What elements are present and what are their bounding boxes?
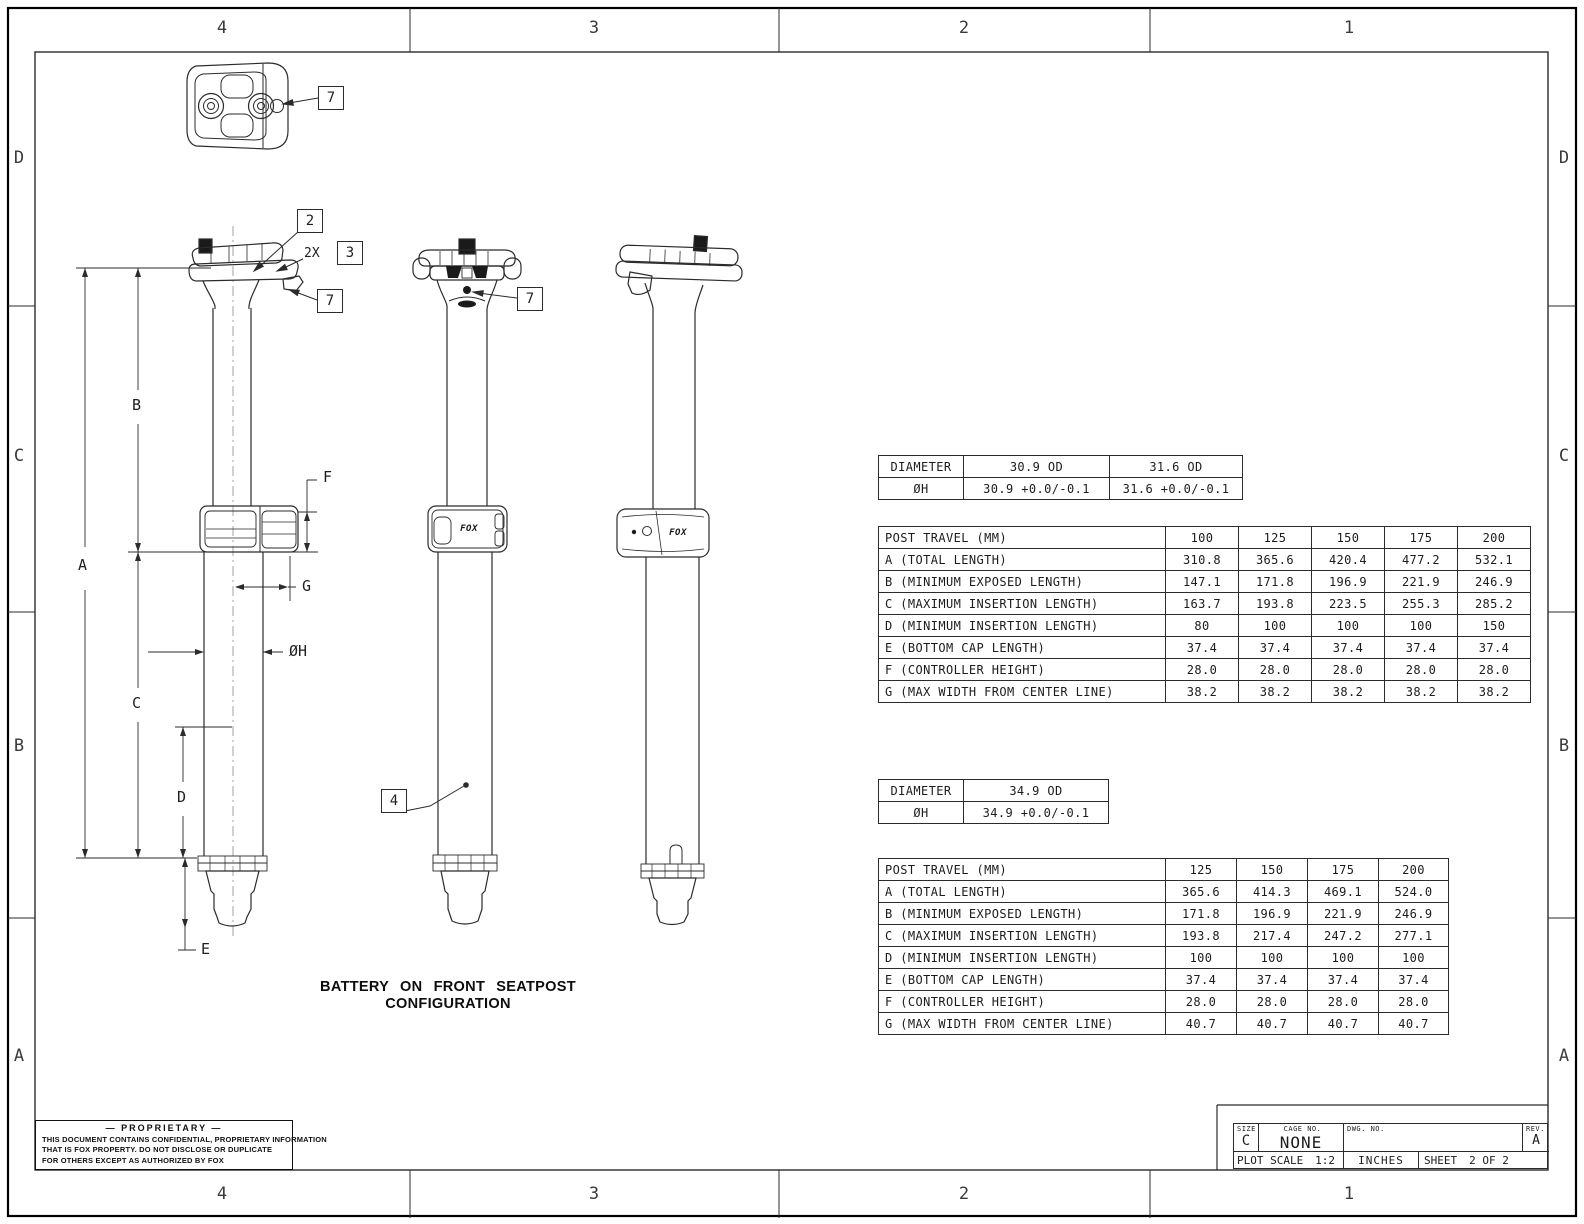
table-cell: 37.4 [1312,637,1385,659]
table-cell: E (BOTTOM CAP LENGTH) [879,637,1166,659]
fox-logo: FOX [454,524,484,534]
table-cell: DIAMETER [879,456,964,478]
table-cell: 100 [1385,615,1458,637]
zone-row-label: C [1551,446,1577,466]
zone-col-label: 1 [1336,18,1362,38]
table-cell: 100 [1239,615,1312,637]
table-cell: 34.9 +0.0/-0.1 [964,802,1109,824]
table-cell: 31.6 +0.0/-0.1 [1110,478,1243,500]
table-cell: 100 [1166,527,1239,549]
table-cell: 221.9 [1385,571,1458,593]
table-cell: 100 [1166,947,1237,969]
proprietary-line: THAT IS FOX PROPERTY. DO NOT DISCLOSE OR… [42,1145,292,1154]
table-cell: 28.0 [1308,991,1379,1013]
cad-table: POST TRAVEL (MM)100125150175200A (TOTAL … [878,526,1531,703]
table-row: DIAMETER30.9 OD31.6 OD [879,456,1243,478]
table-row: ØH30.9 +0.0/-0.131.6 +0.0/-0.1 [879,478,1243,500]
table-cell: D (MINIMUM INSERTION LENGTH) [879,947,1166,969]
table-cell: 40.7 [1166,1013,1237,1035]
dim-label-e: E [200,942,211,957]
callout-7-top-view: 7 [318,86,344,110]
table-cell: 310.8 [1166,549,1239,571]
table-cell: 285.2 [1458,593,1531,615]
table-cell: 365.6 [1239,549,1312,571]
travel-table-1: POST TRAVEL (MM)100125150175200A (TOTAL … [878,526,1531,703]
table-cell: 34.9 OD [964,780,1109,802]
fox-logo: FOX [663,528,693,538]
table-row: G (MAX WIDTH FROM CENTER LINE)40.740.740… [879,1013,1449,1035]
table-cell: 37.4 [1237,969,1308,991]
table-cell: 38.2 [1458,681,1531,703]
table-cell: 414.3 [1237,881,1308,903]
title-dwg-cell: DWG. NO. [1344,1124,1523,1151]
table-cell: 37.4 [1166,969,1237,991]
size-label: SIZE [1234,1124,1258,1133]
table-cell: 532.1 [1458,549,1531,571]
sheet-value: 2 OF 2 [1469,1154,1509,1167]
zone-col-label: 1 [1336,1184,1362,1204]
table-cell: 37.4 [1458,637,1531,659]
table-cell: A (TOTAL LENGTH) [879,549,1166,571]
cad-table: DIAMETER30.9 OD31.6 ODØH30.9 +0.0/-0.131… [878,455,1243,500]
table-row: D (MINIMUM INSERTION LENGTH)100100100100 [879,947,1449,969]
table-cell: 200 [1379,859,1449,881]
table-cell: 150 [1237,859,1308,881]
table-cell: 37.4 [1239,637,1312,659]
cad-table: DIAMETER34.9 ODØH34.9 +0.0/-0.1 [878,779,1109,824]
callout-7-front-view: 7 [517,287,543,311]
zone-row-label: D [6,148,32,168]
table-cell: 28.0 [1166,991,1237,1013]
units-cell: INCHES [1344,1151,1419,1168]
table-row: A (TOTAL LENGTH)310.8365.6420.4477.2532.… [879,549,1531,571]
table-row: POST TRAVEL (MM)100125150175200 [879,527,1531,549]
zone-row-label: D [1551,148,1577,168]
zone-col-label: 4 [209,1184,235,1204]
title-block: SIZE C CAGE NO. NONE DWG. NO. REV. A PLO… [1233,1123,1548,1169]
table-row: F (CONTROLLER HEIGHT)28.028.028.028.0 [879,991,1449,1013]
table-cell: 246.9 [1379,903,1449,925]
table-cell: 38.2 [1239,681,1312,703]
table-cell: 28.0 [1237,991,1308,1013]
units-value: INCHES [1358,1154,1404,1167]
zone-col-label: 2 [951,18,977,38]
table-row: B (MINIMUM EXPOSED LENGTH)147.1171.8196.… [879,571,1531,593]
table-cell: 171.8 [1239,571,1312,593]
table-cell: 28.0 [1239,659,1312,681]
table-cell: 40.7 [1237,1013,1308,1035]
size-value: C [1234,1133,1258,1149]
table-cell: 38.2 [1166,681,1239,703]
table-cell: A (TOTAL LENGTH) [879,881,1166,903]
qty-2x-label: 2X [303,246,321,261]
table-cell: G (MAX WIDTH FROM CENTER LINE) [879,1013,1166,1035]
table-row: E (BOTTOM CAP LENGTH)37.437.437.437.4 [879,969,1449,991]
plot-scale-label: PLOT SCALE [1237,1154,1303,1167]
table-row: B (MINIMUM EXPOSED LENGTH)171.8196.9221.… [879,903,1449,925]
table-cell: 196.9 [1237,903,1308,925]
callout-3: 3 [337,241,363,265]
callout-4: 4 [381,789,407,813]
table-cell: 100 [1379,947,1449,969]
zone-row-label: A [1551,1046,1577,1066]
table-cell: 100 [1312,615,1385,637]
top-view [187,63,288,149]
table-cell: 28.0 [1166,659,1239,681]
table-cell: 125 [1239,527,1312,549]
rev-value: A [1523,1133,1549,1148]
table-cell: C (MAXIMUM INSERTION LENGTH) [879,593,1166,615]
zone-col-label: 4 [209,18,235,38]
table-cell: 217.4 [1237,925,1308,947]
table-cell: 28.0 [1385,659,1458,681]
dim-label-h: ØH [288,644,308,659]
table-cell: 38.2 [1312,681,1385,703]
table-cell: 196.9 [1312,571,1385,593]
table-cell: 31.6 OD [1110,456,1243,478]
dim-label-b: B [131,398,142,413]
table-cell: 193.8 [1166,925,1237,947]
table-row: E (BOTTOM CAP LENGTH)37.437.437.437.437.… [879,637,1531,659]
table-cell: 477.2 [1385,549,1458,571]
zone-row-label: A [6,1046,32,1066]
title-cage-cell: CAGE NO. NONE [1259,1124,1344,1151]
table-cell: 147.1 [1166,571,1239,593]
callout-2: 2 [297,209,323,233]
table-cell: 223.5 [1312,593,1385,615]
table-row: C (MAXIMUM INSERTION LENGTH)163.7193.822… [879,593,1531,615]
table-cell: 469.1 [1308,881,1379,903]
proprietary-line: THIS DOCUMENT CONTAINS CONFIDENTIAL, PRO… [42,1135,292,1144]
view-caption: BATTERY ON FRONT SEATPOST CONFIGURATION [285,978,611,1012]
zone-row-label: B [1551,736,1577,756]
dim-label-d: D [176,790,187,805]
table-cell: B (MINIMUM EXPOSED LENGTH) [879,903,1166,925]
table-cell: 37.4 [1385,637,1458,659]
table-cell: 37.4 [1379,969,1449,991]
table-row: A (TOTAL LENGTH)365.6414.3469.1524.0 [879,881,1449,903]
title-rev-cell: REV. A [1523,1124,1549,1151]
zone-row-label: B [6,736,32,756]
proprietary-note: — PROPRIETARY — THIS DOCUMENT CONTAINS C… [35,1120,293,1170]
table-cell: 40.7 [1308,1013,1379,1035]
table-cell: D (MINIMUM INSERTION LENGTH) [879,615,1166,637]
table-cell: 30.9 +0.0/-0.1 [964,478,1110,500]
table-row: POST TRAVEL (MM)125150175200 [879,859,1449,881]
zone-col-label: 3 [581,18,607,38]
table-row: F (CONTROLLER HEIGHT)28.028.028.028.028.… [879,659,1531,681]
table-cell: 100 [1308,947,1379,969]
table-cell: 175 [1308,859,1379,881]
table-cell: 40.7 [1379,1013,1449,1035]
table-cell: 200 [1458,527,1531,549]
table-cell: 30.9 OD [964,456,1110,478]
dim-label-a: A [77,558,88,573]
table-row: ØH34.9 +0.0/-0.1 [879,802,1109,824]
cad-table: POST TRAVEL (MM)125150175200A (TOTAL LEN… [878,858,1449,1035]
sheet-label: SHEET [1424,1154,1457,1167]
table-row: D (MINIMUM INSERTION LENGTH)801001001001… [879,615,1531,637]
table-cell: 420.4 [1312,549,1385,571]
table-cell: 37.4 [1166,637,1239,659]
table-cell: 28.0 [1379,991,1449,1013]
table-cell: 38.2 [1385,681,1458,703]
table-cell: 247.2 [1308,925,1379,947]
table-cell: 28.0 [1312,659,1385,681]
table-cell: 100 [1237,947,1308,969]
table-cell: 365.6 [1166,881,1237,903]
side-view-right [616,236,742,925]
title-size-cell: SIZE C [1234,1124,1259,1151]
table-cell: 255.3 [1385,593,1458,615]
table-row: C (MAXIMUM INSERTION LENGTH)193.8217.424… [879,925,1449,947]
table-cell: ØH [879,802,964,824]
cage-no-label: CAGE NO. [1259,1124,1343,1133]
zone-row-label: C [6,446,32,466]
table-cell: 37.4 [1308,969,1379,991]
table-cell: 125 [1166,859,1237,881]
table-cell: 246.9 [1458,571,1531,593]
proprietary-title: — PROPRIETARY — [36,1123,292,1133]
cage-no-value: NONE [1259,1133,1343,1152]
table-cell: 150 [1458,615,1531,637]
side-view-left [76,226,318,950]
dim-label-c: C [131,696,142,711]
table-cell: POST TRAVEL (MM) [879,859,1166,881]
table-cell: 277.1 [1379,925,1449,947]
table-row: DIAMETER34.9 OD [879,780,1109,802]
table-cell: G (MAX WIDTH FROM CENTER LINE) [879,681,1166,703]
diameter-table-1: DIAMETER30.9 OD31.6 ODØH30.9 +0.0/-0.131… [878,455,1243,500]
plot-scale-value: 1:2 [1315,1154,1335,1167]
table-cell: 150 [1312,527,1385,549]
table-cell: 524.0 [1379,881,1449,903]
dim-label-f: F [322,470,333,485]
table-cell: POST TRAVEL (MM) [879,527,1166,549]
table-cell: E (BOTTOM CAP LENGTH) [879,969,1166,991]
table-cell: C (MAXIMUM INSERTION LENGTH) [879,925,1166,947]
table-cell: F (CONTROLLER HEIGHT) [879,991,1166,1013]
callout-7-side-view: 7 [317,289,343,313]
table-cell: 171.8 [1166,903,1237,925]
table-cell: 221.9 [1308,903,1379,925]
drawing-sheet: 4 3 2 1 4 3 2 1 D C B A D C B A A B C D … [0,0,1584,1224]
table-cell: F (CONTROLLER HEIGHT) [879,659,1166,681]
table-cell: 193.8 [1239,593,1312,615]
dwg-no-label: DWG. NO. [1344,1124,1522,1133]
table-cell: 175 [1385,527,1458,549]
dim-label-g: G [301,579,312,594]
sheet-cell: SHEET 2 OF 2 [1419,1151,1549,1168]
proprietary-line: FOR OTHERS EXCEPT AS AUTHORIZED BY FOX [42,1156,292,1165]
rev-label: REV. [1523,1124,1549,1133]
table-cell: 163.7 [1166,593,1239,615]
table-cell: ØH [879,478,964,500]
table-cell: DIAMETER [879,780,964,802]
plot-scale-cell: PLOT SCALE 1:2 [1234,1151,1344,1168]
front-view [413,239,521,924]
zone-col-label: 2 [951,1184,977,1204]
table-cell: 80 [1166,615,1239,637]
diameter-table-2: DIAMETER34.9 ODØH34.9 +0.0/-0.1 [878,779,1109,824]
travel-table-2: POST TRAVEL (MM)125150175200A (TOTAL LEN… [878,858,1449,1035]
zone-col-label: 3 [581,1184,607,1204]
table-cell: 28.0 [1458,659,1531,681]
table-cell: B (MINIMUM EXPOSED LENGTH) [879,571,1166,593]
table-row: G (MAX WIDTH FROM CENTER LINE)38.238.238… [879,681,1531,703]
